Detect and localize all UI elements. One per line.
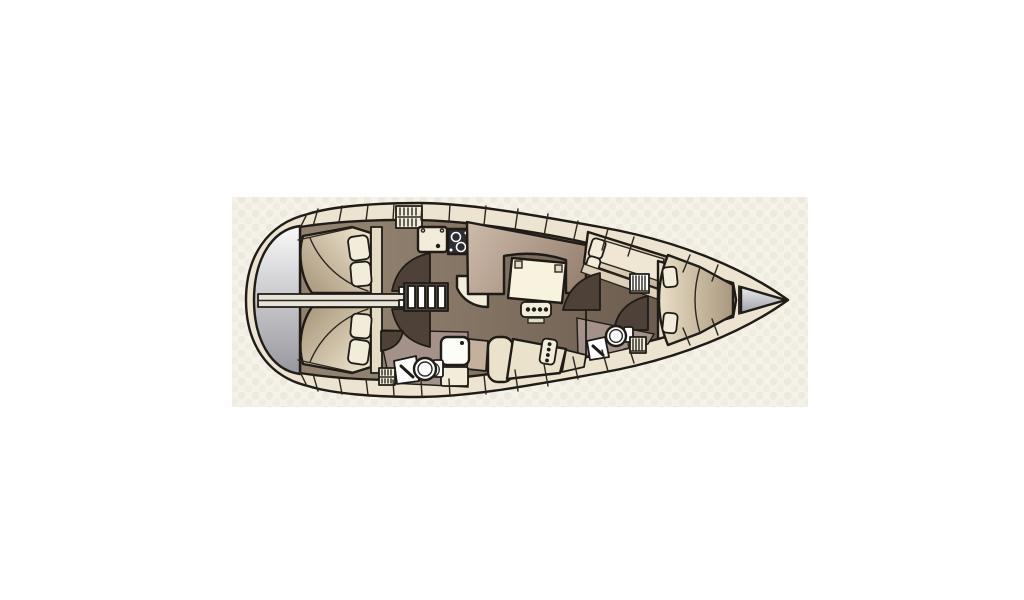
companionway-vent-louver — [396, 206, 422, 228]
v-berth-pillow-1 — [662, 266, 678, 287]
table-hinge — [515, 261, 522, 268]
screenshot-canvas: Sailing yacht interior layout — top view… — [0, 0, 1024, 600]
galley-sink-unit — [418, 227, 447, 252]
stove-knob — [450, 249, 453, 252]
ladder-step — [438, 286, 445, 308]
ladder-handle — [399, 287, 404, 294]
aft-port-pillow-2 — [350, 261, 372, 287]
forward-head-louver — [630, 337, 646, 353]
table-hinge — [555, 265, 562, 272]
aft-port-sideshelf — [371, 227, 382, 294]
aft-head-toilet — [414, 358, 443, 380]
ladder-handle — [399, 300, 404, 307]
aft-head-vanity — [441, 367, 468, 386]
shower-tray — [441, 337, 469, 365]
settee-rack — [539, 338, 558, 365]
aft-port-pillow-1 — [347, 235, 370, 262]
companionway-ladder — [399, 283, 448, 311]
shower-drain — [460, 341, 464, 345]
v-berth-pillow-2 — [662, 312, 678, 333]
hanging-locker-louver — [630, 274, 649, 293]
ladder-step — [408, 286, 415, 308]
ladder-step — [418, 286, 425, 308]
boat-layout-plan: Sailing yacht interior layout — top view… — [0, 0, 1024, 600]
ladder-step — [428, 286, 435, 308]
aft-starboard-pillow-2 — [350, 313, 372, 339]
sink-drain — [436, 244, 440, 248]
aft-starboard-pillow-1 — [347, 339, 370, 366]
engine-trunk — [258, 294, 406, 307]
